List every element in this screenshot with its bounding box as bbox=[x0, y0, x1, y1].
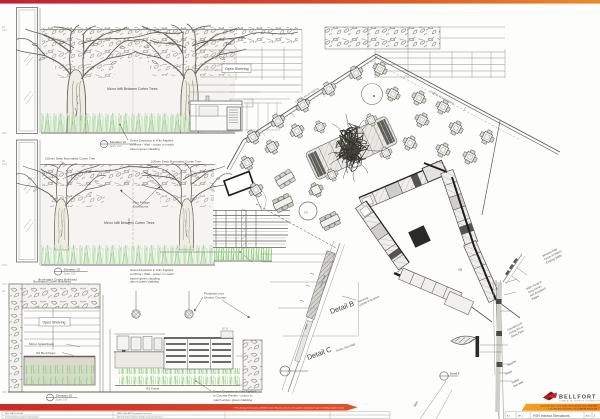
svg-text:T. 02 9386 4522 www.bellfort: T. 02 9386 4522 www.bellfort.com.au ABN … bbox=[548, 408, 597, 411]
svg-text:Scale 1:50: Scale 1:50 bbox=[64, 273, 76, 276]
svg-text:Extensions: Extensions bbox=[133, 205, 149, 209]
svg-text:Mirror Splashback: Mirror Splashback bbox=[29, 342, 54, 346]
svg-text:Service Counter: Service Counter bbox=[204, 296, 226, 300]
svg-text:Elevation 02: Elevation 02 bbox=[64, 268, 80, 272]
svg-text:Suite 1503, Tower 2, 101 Graft: Suite 1503, Tower 2, 101 Grafton Street,… bbox=[541, 405, 597, 408]
svg-text:DS: DS bbox=[304, 211, 308, 215]
svg-text:Mirror Infill Between Corten T: Mirror Infill Between Corten Trees bbox=[107, 87, 158, 91]
svg-text:BF-1: BF-1 bbox=[518, 416, 524, 418]
svg-text:B2 10: B2 10 bbox=[222, 329, 229, 331]
svg-text:COMMERCIAL INTERIOR CONTRACTOR: COMMERCIAL INTERIOR CONTRACTORS bbox=[559, 400, 600, 403]
svg-text:Detail E: Detail E bbox=[450, 372, 460, 376]
svg-text:SS Kicker: SS Kicker bbox=[146, 387, 160, 391]
svg-text:© This drawing is the property: © This drawing is the property of Bellfo… bbox=[233, 407, 344, 410]
svg-text:Mirror Infill Between Corten T: Mirror Infill Between Corten Trees bbox=[104, 221, 155, 225]
svg-text:REV DATE ISSUE: REV DATE ISSUE bbox=[5, 412, 23, 415]
svg-text:Scale 1:50: Scale 1:50 bbox=[56, 399, 68, 402]
svg-text:BELLFORT: BELLFORT bbox=[559, 394, 596, 400]
svg-text:Open Shelving: Open Shelving bbox=[225, 67, 249, 71]
svg-text:MG DS DS Issued for Tender: MG DS DS Issued for Tender and Construct… bbox=[117, 416, 163, 419]
svg-text:Elevation 01: Elevation 01 bbox=[110, 140, 126, 144]
svg-text:Scale 1:50: Scale 1:50 bbox=[110, 145, 122, 148]
svg-text:SS Benchtops: SS Benchtops bbox=[36, 351, 56, 355]
svg-text:V8: V8 bbox=[458, 268, 462, 272]
svg-text:Open Shelving: Open Shelving bbox=[43, 321, 66, 325]
svg-text:DRN CHK APP Description of: DRN CHK APP Description of Issue bbox=[117, 412, 152, 415]
svg-text:F0H Interior Elevations: F0H Interior Elevations bbox=[533, 414, 570, 418]
svg-text:atrium green cladding: atrium green cladding bbox=[130, 147, 160, 151]
svg-text:P1 22.04.16 Issued for Infor: P1 22.04.16 Issued for Information bbox=[5, 416, 39, 419]
svg-text:match atrium green cladding: match atrium green cladding bbox=[213, 398, 252, 402]
svg-text:100mm Deep Illuminated Corten: 100mm Deep Illuminated Corten Tree bbox=[45, 157, 95, 161]
svg-text:atrium green cladding: atrium green cladding bbox=[130, 280, 159, 284]
svg-text:Illuminated Corten Bulkhead: Illuminated Corten Bulkhead bbox=[33, 280, 71, 284]
svg-text:100mm Deep Illuminated Corten: 100mm Deep Illuminated Corten Tree bbox=[151, 160, 201, 164]
svg-text:Elevation 03: Elevation 03 bbox=[56, 394, 72, 398]
svg-text:A210: A210 bbox=[586, 415, 592, 418]
